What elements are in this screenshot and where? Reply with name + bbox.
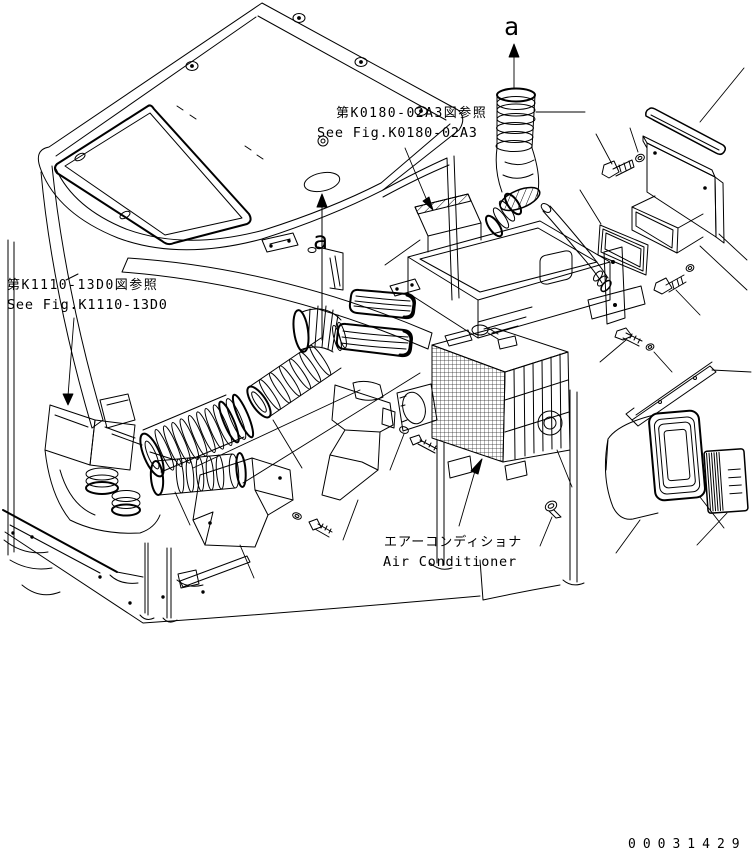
outlet-duct (632, 196, 703, 253)
parts-diagram-page: 第K0180-02A3図参照 See Fig.K0180-02A3 第K1110… (0, 0, 753, 857)
drawing-number: 00031429 (628, 838, 747, 852)
air-conditioner-label-en: Air Conditioner (383, 555, 517, 569)
section-label-a-top: a (504, 14, 519, 40)
air-conditioner-unit (397, 325, 570, 480)
air-filter (704, 449, 748, 514)
cab-left-pillar (4, 166, 175, 595)
floor-screw (292, 512, 332, 537)
vent-assembly (45, 394, 160, 533)
ref-label-k0180-en: See Fig.K0180-02A3 (317, 126, 478, 140)
register-elbow (291, 306, 341, 353)
bracket (626, 362, 716, 426)
recirculation-cover (605, 410, 705, 519)
intake-funnel (397, 384, 437, 431)
cab-front-frame (122, 156, 459, 349)
mounting-bolt-bracket (615, 328, 655, 351)
flexible-duct-upper (243, 338, 341, 421)
seal-strip (646, 108, 725, 154)
duct-tray (408, 194, 645, 338)
elbow-duct (496, 89, 543, 216)
air-conditioner-label-jp: エアーコンディショナ (384, 536, 522, 550)
floor-duct-cover-left (193, 458, 293, 547)
section-label-a-side: a (313, 228, 328, 254)
mounting-bolt-lower (654, 263, 695, 294)
mounting-bolt-ac (399, 425, 437, 453)
ref-label-k1110-en: See Fig.K1110-13D0 (7, 298, 168, 312)
ref-label-k1110-jp: 第K1110-13D0図参照 (7, 279, 158, 293)
ref-label-k0180-jp: 第K0180-02A3図参照 (336, 107, 487, 121)
tapping-screw (544, 499, 561, 518)
fresh-air-cover-panel (632, 136, 724, 253)
floor-duct-cover-right (322, 381, 395, 500)
